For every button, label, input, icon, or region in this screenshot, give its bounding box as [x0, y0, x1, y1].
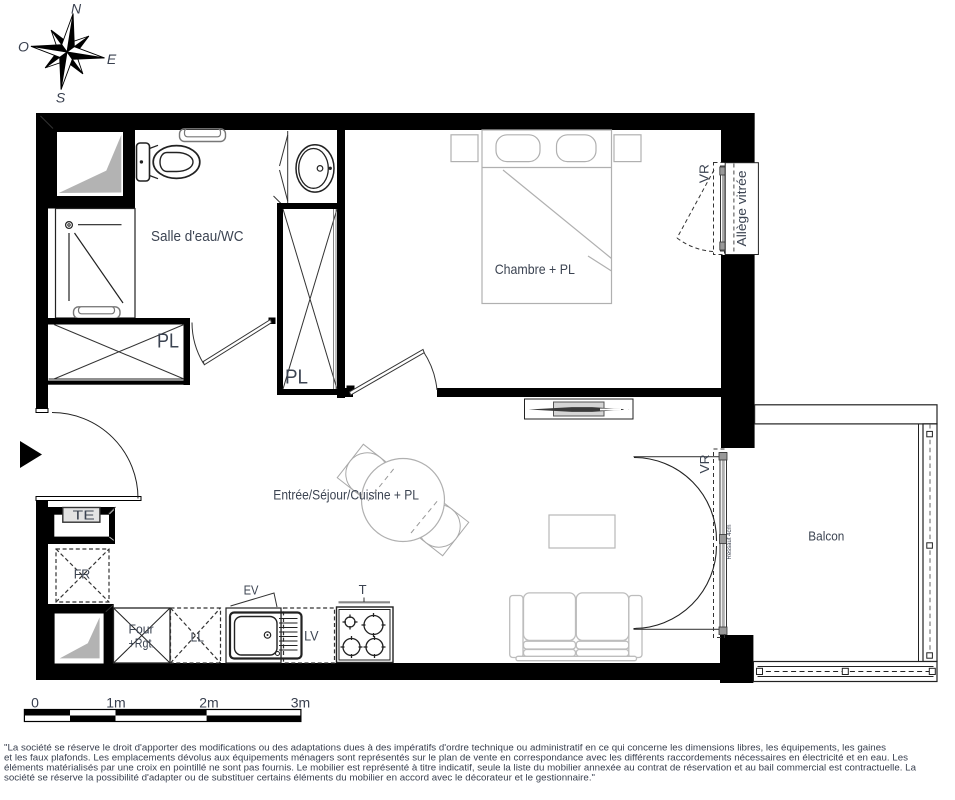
svg-text:T: T: [359, 582, 367, 597]
svg-text:Entrée/Séjour/Cuisine + PL: Entrée/Séjour/Cuisine + PL: [273, 487, 419, 503]
svg-text:et les faux plafonds. Les empl: et les faux plafonds. Les emplacements d…: [4, 753, 909, 763]
svg-text:1m: 1m: [106, 695, 125, 711]
svg-text:Four: Four: [129, 623, 154, 637]
svg-text:EV: EV: [244, 583, 259, 597]
svg-text:Salle d'eau/WC: Salle d'eau/WC: [151, 229, 244, 245]
svg-text:Chambre + PL: Chambre + PL: [495, 261, 575, 277]
svg-text:N: N: [71, 1, 82, 17]
svg-text:0: 0: [31, 695, 39, 711]
svg-text:+Rgt.: +Rgt.: [129, 637, 155, 651]
svg-text:FR: FR: [74, 566, 91, 581]
svg-text:LL: LL: [191, 631, 204, 645]
svg-text:VR: VR: [696, 164, 711, 183]
svg-text:S: S: [56, 90, 66, 106]
svg-text:société se réserve la possibil: société se réserve la possibilité d'adap…: [4, 773, 595, 783]
svg-text:VR: VR: [697, 455, 712, 474]
svg-text:PL: PL: [285, 367, 308, 389]
svg-text:PL: PL: [157, 331, 179, 353]
svg-text:O: O: [18, 39, 29, 55]
svg-text:éléments matérialisés par une: éléments matérialisés par une croix en p…: [4, 763, 916, 773]
svg-text:LV: LV: [304, 628, 319, 644]
svg-text:2m: 2m: [199, 695, 218, 711]
svg-text:Allège vitrée: Allège vitrée: [735, 170, 749, 246]
svg-text:3m: 3m: [291, 695, 310, 711]
svg-text:"La société se réserve le droi: "La société se réserve le droit d'apport…: [4, 742, 887, 752]
svg-text:Balcon: Balcon: [808, 529, 844, 544]
svg-text:Ressaut 4cm: Ressaut 4cm: [727, 524, 733, 559]
svg-text:TE: TE: [73, 508, 95, 523]
svg-text:E: E: [107, 51, 117, 67]
